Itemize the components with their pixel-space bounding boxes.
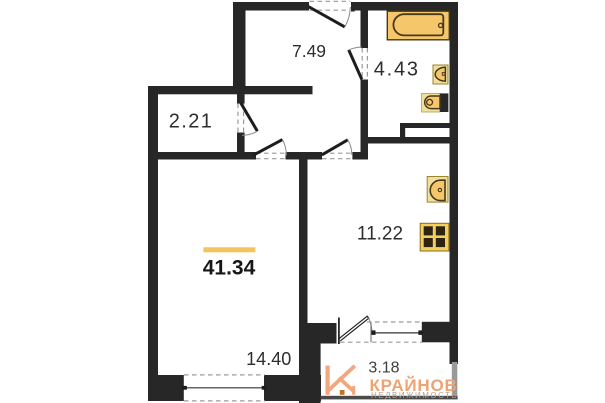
svg-text:14.40: 14.40 bbox=[246, 349, 291, 369]
svg-text:2.21: 2.21 bbox=[169, 110, 214, 132]
svg-text:11.22: 11.22 bbox=[357, 223, 403, 244]
svg-text:7.49: 7.49 bbox=[292, 41, 326, 61]
svg-text:41.34: 41.34 bbox=[203, 257, 256, 280]
svg-text:4.43: 4.43 bbox=[374, 58, 420, 80]
svg-text:НЕДВИЖИМОСТЬ: НЕДВИЖИМОСТЬ bbox=[371, 391, 458, 400]
svg-text:3.18: 3.18 bbox=[368, 359, 399, 376]
